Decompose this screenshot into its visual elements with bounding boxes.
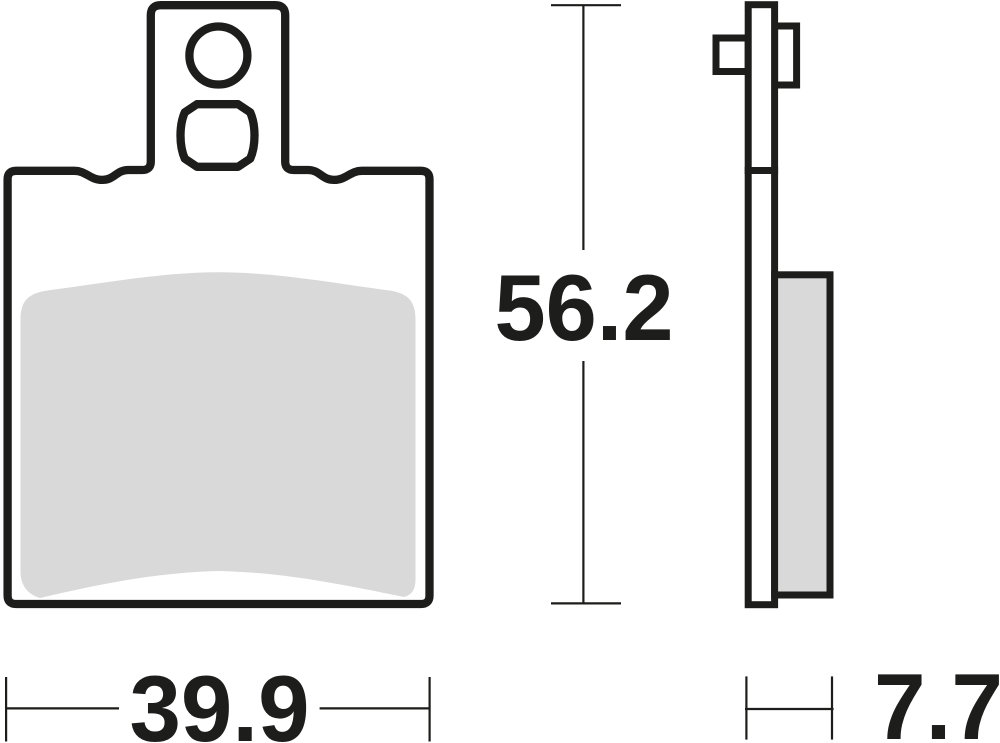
svg-text:56.2: 56.2 (495, 255, 674, 360)
svg-text:39.9: 39.9 (130, 656, 310, 743)
svg-text:7.7: 7.7 (874, 654, 1000, 743)
